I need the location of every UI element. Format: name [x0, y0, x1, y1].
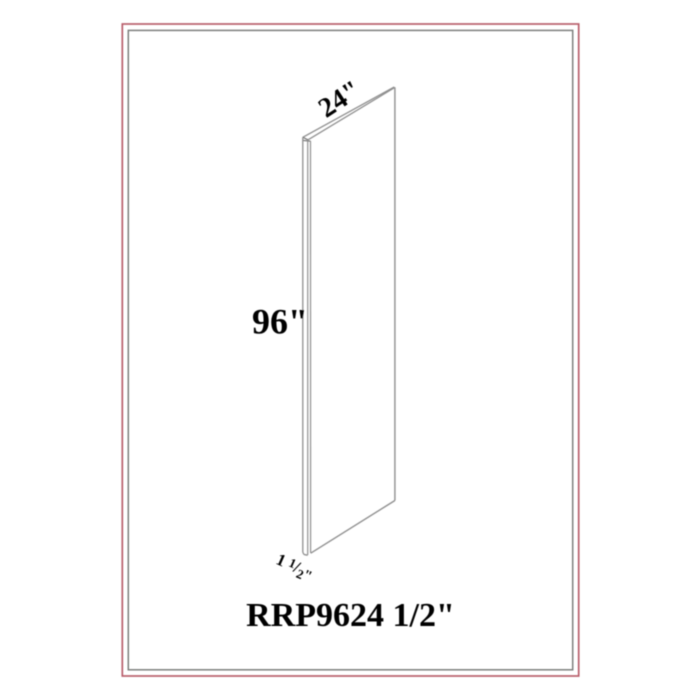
svg-text:96": 96" [252, 302, 308, 342]
svg-text:1 1/2": 1 1/2" [272, 550, 316, 586]
svg-text:24": 24" [313, 75, 366, 125]
svg-text:RRP9624 1/2": RRP9624 1/2" [246, 597, 455, 634]
